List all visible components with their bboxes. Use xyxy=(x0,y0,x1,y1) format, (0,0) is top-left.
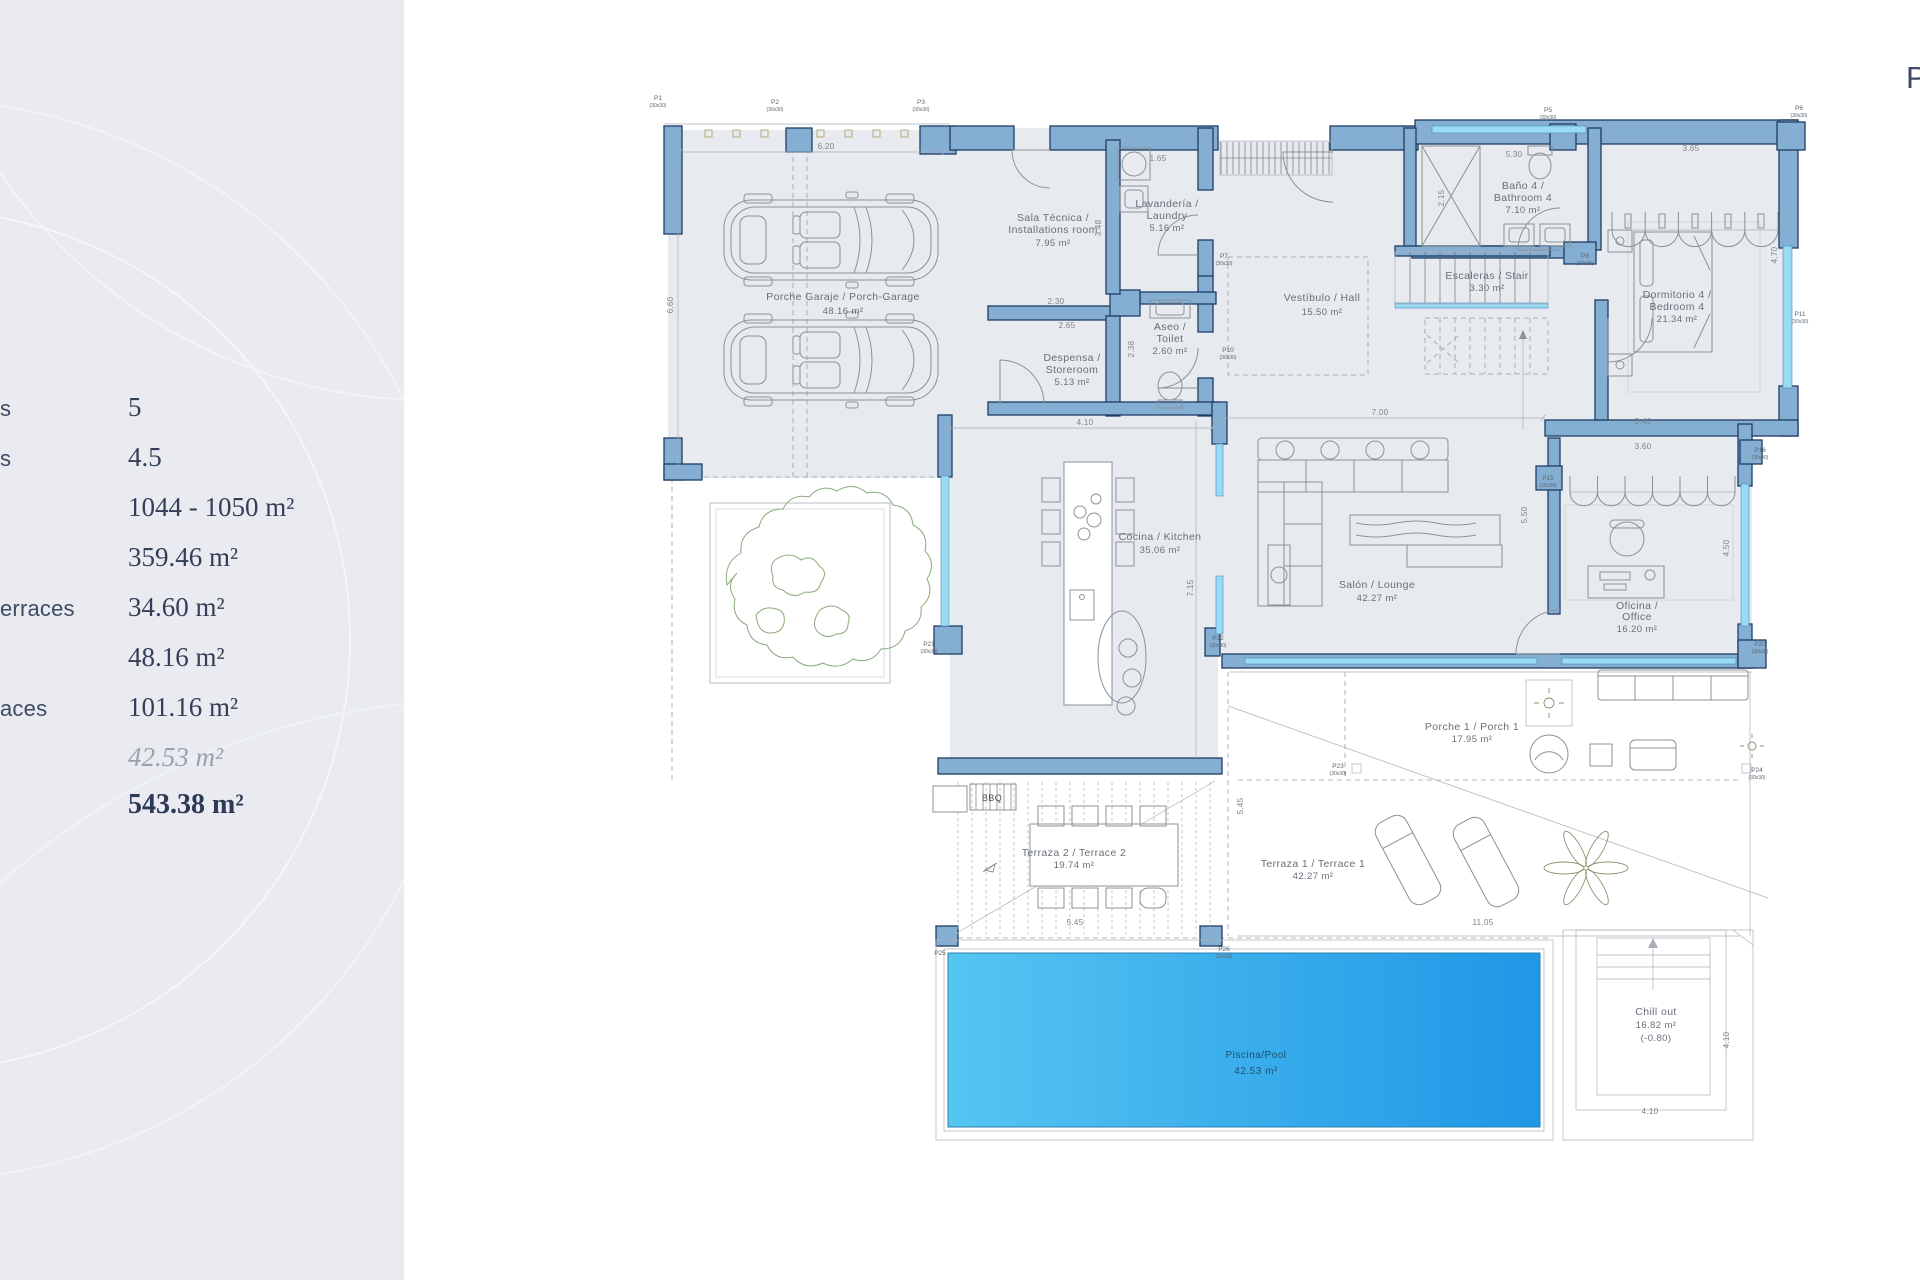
tree-planter xyxy=(710,486,932,683)
room-label-store: Despensa / xyxy=(1043,352,1100,364)
room-area-toilet: 2.60 m² xyxy=(1152,346,1187,357)
pillar-size: (30x30) xyxy=(1791,113,1808,119)
pillar-label: P15 xyxy=(1542,475,1554,482)
room-label-store-2: Storeroom xyxy=(1046,364,1099,376)
room-area-store: 5.13 m² xyxy=(1054,377,1089,388)
dim-label: 11.05 xyxy=(1473,918,1494,927)
pool-label-name: Piscina/Pool xyxy=(1225,1050,1286,1061)
pillar-label: P25 xyxy=(934,950,946,957)
room-label-bbq: BBQ xyxy=(982,793,1002,803)
dim-label: 5.30 xyxy=(1506,150,1523,159)
room-area-stair: 3.30 m² xyxy=(1469,283,1504,294)
dim-label: 3.40 xyxy=(1635,417,1652,426)
pillar-label: P23 xyxy=(1332,763,1344,770)
dim-label: 2.30 xyxy=(1048,297,1065,306)
room-label-garage: Porche Garaje / Porch-Garage xyxy=(766,291,920,303)
room-label-hall: Vestíbulo / Hall xyxy=(1284,292,1360,304)
room-label-toilet-2: Toilet xyxy=(1157,333,1184,345)
pillar-size: (30x30) xyxy=(767,107,784,113)
pillar-label: P11 xyxy=(1794,311,1805,318)
room-label-bath4-2: Bathroom 4 xyxy=(1494,192,1552,204)
chill-label-area: 16.82 m² xyxy=(1636,1020,1677,1031)
room-area-hall: 15.50 m² xyxy=(1302,307,1343,318)
dim-label: 2.38 xyxy=(1127,340,1136,357)
room-label-laundry: Lavandería / xyxy=(1135,198,1198,210)
room-label-stair: Escaleras / Stair xyxy=(1445,270,1528,282)
room-label-tech-2: Installations room xyxy=(1008,224,1098,236)
dim-label: 5.45 xyxy=(1067,918,1084,927)
pillar-size: (30x30) xyxy=(1216,954,1233,960)
room-area-garage: 48.16 m² xyxy=(823,306,864,317)
dim-label: 5.45 xyxy=(1236,797,1245,814)
pillar-size: (30x30) xyxy=(1577,261,1594,267)
room-label-tech: Sala Técnica / xyxy=(1017,212,1089,224)
room-label-bath4: Baño 4 / xyxy=(1502,180,1544,192)
dim-label: 4.70 xyxy=(1770,246,1779,263)
pillar-size: (30x30) xyxy=(1792,319,1809,325)
dim-label: 4.10 xyxy=(1722,1031,1731,1048)
dim-label: 1.65 xyxy=(1150,154,1167,163)
room-area-lounge: 42.27 m² xyxy=(1357,593,1398,604)
dim-label: 4.50 xyxy=(1722,539,1731,556)
pillar-size: (30x30) xyxy=(1210,643,1227,649)
room-area-bath4: 7.10 m² xyxy=(1505,205,1540,216)
room-label-toilet: Aseo / xyxy=(1154,321,1186,333)
pillar-label: P1 xyxy=(654,95,662,102)
dim-label: 5.50 xyxy=(1520,506,1529,523)
room-label-bed4: Dormitorio 4 / xyxy=(1643,289,1712,301)
room-area-porch1: 17.95 m² xyxy=(1452,734,1493,745)
pillar-label: P21 xyxy=(923,641,935,648)
room-label-porch1: Porche 1 / Porch 1 xyxy=(1425,721,1519,733)
dim-label: 4.10 xyxy=(1642,1107,1659,1116)
room-area-kitchen: 35.06 m² xyxy=(1140,545,1181,556)
chill-label-level: (-0.80) xyxy=(1641,1033,1672,1044)
pillar-size: (30x30) xyxy=(1540,115,1557,121)
pillar-label: P20 xyxy=(1754,641,1766,648)
pool-label-area: 42.53 m² xyxy=(1234,1066,1278,1077)
pillar-label: P8 xyxy=(1581,253,1589,260)
pillar-label: P3 xyxy=(917,99,925,106)
pillar-label: P5 xyxy=(1544,107,1552,114)
room-label-office-2: Office xyxy=(1622,611,1652,623)
pillar-size: (30x30) xyxy=(1220,355,1237,361)
room-area-terrace2: 19.74 m² xyxy=(1054,860,1095,871)
pillar-size: (30x30) xyxy=(1330,771,1347,777)
pillar-size: (30x30) xyxy=(1752,455,1769,461)
room-area-laundry: 5.16 m² xyxy=(1149,223,1184,234)
sun-loungers xyxy=(1371,811,1628,910)
dim-label: 2.15 xyxy=(1437,189,1446,206)
pillar-label: P2 xyxy=(771,99,779,106)
dim-label: 7.00 xyxy=(1372,408,1389,417)
dim-label: 4.10 xyxy=(1077,418,1094,427)
room-area-office: 16.20 m² xyxy=(1617,624,1658,635)
pillar-size: (30x30) xyxy=(650,103,667,109)
pillar-size: (30x30) xyxy=(1749,775,1766,781)
pillar-label: P7 xyxy=(1220,253,1228,260)
pillar-size: (30x30) xyxy=(921,649,938,655)
dim-label: 7.15 xyxy=(1186,579,1195,596)
room-area-tech: 7.95 m² xyxy=(1035,238,1070,249)
pillar-label: P16 xyxy=(1754,447,1766,454)
dim-label: 3.65 xyxy=(1683,144,1700,153)
dim-label: 3.48 xyxy=(1094,219,1103,236)
room-label-terrace1: Terraza 1 / Terrace 1 xyxy=(1261,858,1366,870)
pillar-size: (30x30) xyxy=(1752,649,1769,655)
pillar-label: P22 xyxy=(1212,635,1224,642)
room-label-kitchen: Cocina / Kitchen xyxy=(1119,531,1202,543)
dim-label: 2.65 xyxy=(1059,321,1076,330)
plant-icon xyxy=(1544,829,1628,908)
pillar-size: (30x30) xyxy=(913,107,930,113)
pillar-label: P24 xyxy=(1751,767,1763,774)
pillar-label: P10 xyxy=(1222,347,1234,354)
room-area-terrace1: 42.27 m² xyxy=(1293,871,1334,882)
dim-label: 3.60 xyxy=(1635,442,1652,451)
room-label-bed4-2: Bedroom 4 xyxy=(1650,301,1705,313)
floor-plan: Piscina/Pool 42.53 m² Chill out 16.82 m²… xyxy=(0,0,1920,1280)
room-label-lounge: Salón / Lounge xyxy=(1339,579,1415,591)
pillar-size: (30x30) xyxy=(1540,483,1557,489)
chill-label-name: Chill out xyxy=(1635,1006,1677,1018)
dim-label: 6.60 xyxy=(666,296,675,313)
pillar-label: P26 xyxy=(1218,946,1230,953)
room-label-terrace2: Terraza 2 / Terrace 2 xyxy=(1022,847,1127,859)
porch-furniture xyxy=(1526,670,1764,773)
room-label-laundry-2: Laundry xyxy=(1147,210,1188,222)
room-area-bed4: 21.34 m² xyxy=(1657,314,1698,325)
pillar-size: (30x30) xyxy=(1216,261,1233,267)
pool: Piscina/Pool 42.53 m² xyxy=(936,940,1553,1140)
pillar-label: P6 xyxy=(1795,105,1803,112)
dim-label: 6.20 xyxy=(818,142,835,151)
